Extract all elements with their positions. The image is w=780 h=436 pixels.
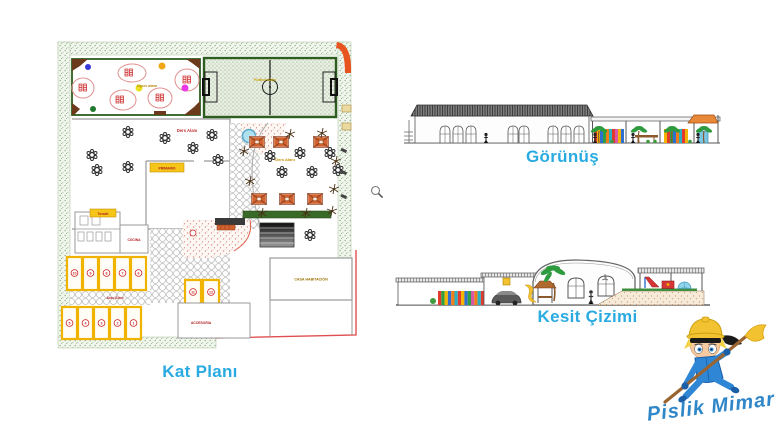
climbing-dome: [678, 282, 691, 289]
drawing-canvas: Oyun alanı Futbol alanı Ders Alanı PRIMA…: [0, 0, 780, 436]
yellow-box: [503, 278, 510, 285]
house-label: CASA HABITACIÓN: [294, 277, 328, 282]
parking-area-label: Araç Alanı: [106, 296, 123, 300]
stall-number: 8: [106, 271, 108, 275]
kitchen-label: COCINA: [127, 238, 141, 242]
floor-plan-drawing: Oyun alanı Futbol alanı Ders Alanı PRIMA…: [54, 39, 358, 351]
stall-number: 7: [122, 271, 124, 275]
slide-red: [645, 277, 659, 288]
stall-number: 10: [73, 271, 77, 275]
field-label: Futbol alanı: [254, 77, 276, 82]
rainbow-fence: [438, 291, 484, 305]
toilet-label: Tuvalet: [98, 212, 110, 216]
toilet-block: [75, 212, 120, 253]
football-field: Futbol alanı: [203, 58, 337, 117]
kitchen-room: COCINA: [120, 225, 148, 253]
playground-elevation: [590, 115, 720, 143]
stall-number: 3: [101, 321, 103, 325]
left-wall: [404, 120, 413, 143]
section-title: Kesit Çizimi: [495, 307, 680, 327]
main-building: [411, 105, 593, 143]
grass-strip: [622, 289, 697, 292]
glove-right: [723, 348, 730, 355]
stall-number: 4: [85, 321, 87, 325]
left-building: [396, 278, 486, 305]
terrace-marker: [190, 230, 196, 236]
flag: [745, 325, 766, 342]
leg-right: [716, 379, 731, 387]
playground-area: Oyun alanı: [72, 59, 200, 115]
hedge-strip: [243, 211, 331, 218]
patio-label: Ders Alanı: [275, 157, 295, 162]
elevation-title: Görünüş: [480, 147, 645, 167]
house-room: CASA HABITACIÓN: [270, 258, 352, 336]
stall-number: 1: [133, 321, 135, 325]
plan-title: Kat Planı: [120, 362, 280, 382]
stall-number: 2: [117, 321, 119, 325]
orange-roof: [688, 115, 718, 123]
playground-label: Oyun alanı: [137, 83, 157, 88]
pergola: [260, 223, 294, 247]
primary-room-label: PRIMARIO: [159, 167, 176, 171]
glove-left: [681, 382, 688, 389]
annex-label: ACCESORIA: [191, 321, 212, 325]
terrace: [183, 218, 251, 258]
stall-number: 11: [191, 290, 195, 294]
annex-room: ACCESORIA: [178, 303, 250, 338]
headband: [690, 338, 721, 343]
classroom-label: Ders Alanı: [177, 128, 198, 133]
elevation-drawing: [402, 100, 722, 148]
stall-number: 6: [138, 271, 140, 275]
hard-hat: [687, 317, 724, 340]
stall-number: 9: [90, 271, 92, 275]
stall-number: 5: [69, 321, 71, 325]
stall-number: 12: [209, 290, 213, 294]
magnifier-cursor-icon: [370, 185, 384, 199]
bush: [430, 298, 436, 304]
